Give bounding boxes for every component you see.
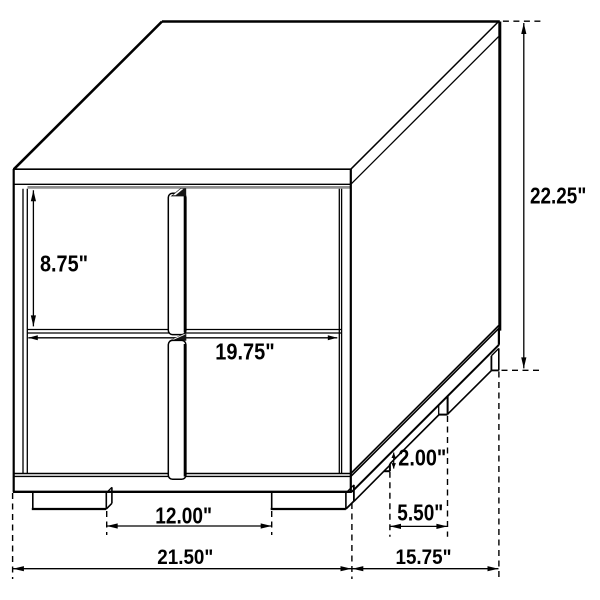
- svg-text:22.25": 22.25": [530, 182, 586, 208]
- svg-text:5.50": 5.50": [397, 500, 443, 526]
- svg-text:21.50": 21.50": [157, 545, 213, 569]
- svg-text:15.75": 15.75": [396, 545, 452, 569]
- svg-text:19.75": 19.75": [215, 338, 274, 364]
- svg-text:12.00": 12.00": [155, 502, 212, 528]
- svg-text:8.75": 8.75": [40, 251, 88, 277]
- svg-text:2.00": 2.00": [398, 445, 446, 471]
